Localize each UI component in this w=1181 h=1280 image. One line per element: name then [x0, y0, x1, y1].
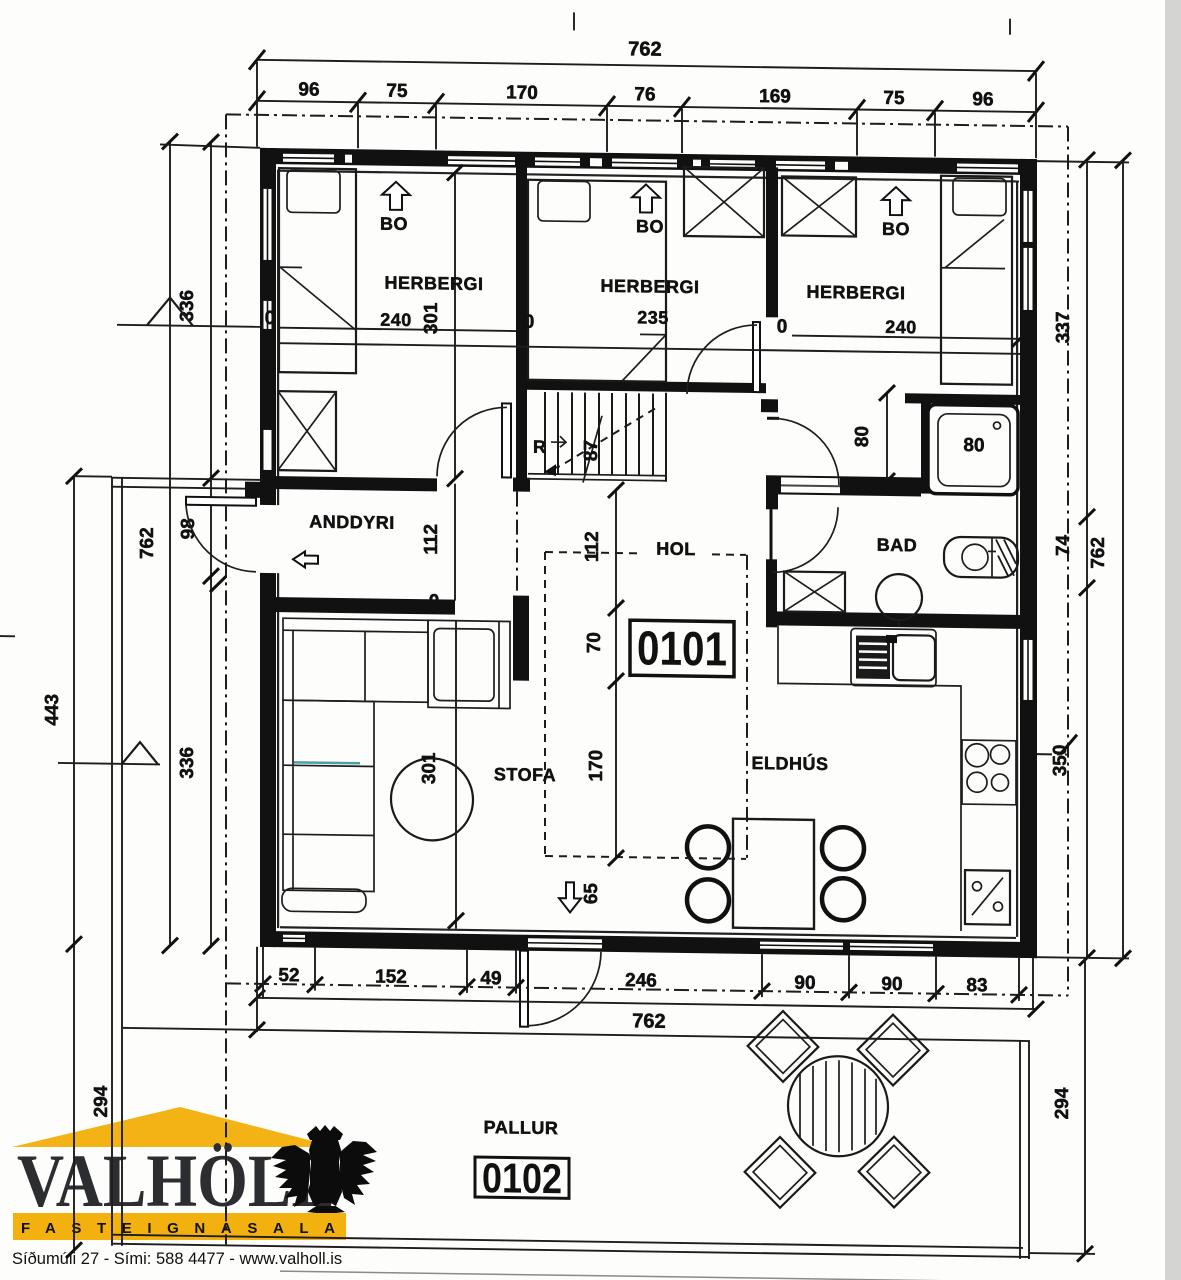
svg-text:75: 75: [386, 81, 408, 102]
svg-text:Síðumúli 27 - Sími: 588 4477 -: Síðumúli 27 - Sími: 588 4477 - www.valho…: [12, 1250, 342, 1268]
svg-text:350: 350: [1050, 744, 1071, 776]
svg-text:336: 336: [177, 747, 198, 779]
svg-text:52: 52: [278, 965, 299, 986]
svg-text:49: 49: [480, 968, 501, 989]
svg-text:HOL: HOL: [656, 539, 695, 560]
svg-text:762: 762: [1088, 537, 1109, 569]
svg-text:0101: 0101: [637, 622, 727, 676]
svg-text:87: 87: [581, 440, 602, 461]
svg-text:HERBERGI: HERBERGI: [600, 276, 699, 297]
svg-text:246: 246: [625, 970, 657, 991]
svg-text:BO: BO: [380, 214, 408, 234]
svg-text:169: 169: [759, 86, 791, 107]
svg-text:294: 294: [91, 1085, 112, 1117]
svg-text:240: 240: [380, 310, 412, 330]
svg-text:762: 762: [137, 527, 158, 559]
svg-text:74: 74: [1053, 534, 1074, 556]
svg-text:336: 336: [177, 290, 198, 322]
svg-text:STOFA: STOFA: [494, 764, 556, 785]
svg-text:235: 235: [637, 307, 669, 327]
svg-text:0: 0: [777, 316, 788, 337]
svg-text:65: 65: [581, 883, 602, 905]
svg-text:ELDHÚS: ELDHÚS: [751, 752, 828, 774]
svg-text:76: 76: [634, 84, 655, 105]
svg-text:240: 240: [885, 317, 917, 337]
svg-text:112: 112: [582, 531, 603, 562]
svg-text:762: 762: [628, 38, 661, 60]
svg-text:83: 83: [966, 975, 987, 996]
svg-text:96: 96: [972, 89, 993, 110]
svg-text:ANDDYRI: ANDDYRI: [309, 512, 395, 533]
svg-text:337: 337: [1053, 312, 1074, 344]
svg-text:301: 301: [419, 752, 440, 784]
svg-text:BO: BO: [882, 219, 910, 239]
svg-text:R: R: [533, 437, 546, 457]
svg-text:75: 75: [883, 88, 905, 109]
svg-text:90: 90: [881, 974, 902, 995]
svg-text:443: 443: [42, 694, 63, 726]
svg-text:0102: 0102: [482, 1154, 562, 1202]
svg-text:80: 80: [852, 426, 873, 447]
svg-text:0: 0: [429, 591, 440, 612]
svg-text:112: 112: [421, 524, 442, 555]
svg-text:80: 80: [963, 435, 984, 456]
svg-text:90: 90: [794, 973, 815, 994]
svg-text:HERBERGI: HERBERGI: [806, 282, 905, 303]
svg-text:BAD: BAD: [877, 535, 917, 556]
svg-text:70: 70: [584, 632, 605, 653]
svg-text:170: 170: [506, 82, 538, 103]
svg-text:170: 170: [586, 750, 607, 782]
svg-text:HERBERGI: HERBERGI: [384, 273, 483, 294]
svg-text:301: 301: [421, 302, 442, 334]
svg-text:BO: BO: [636, 216, 664, 236]
svg-text:294: 294: [1052, 1087, 1073, 1119]
svg-text:96: 96: [298, 79, 319, 100]
svg-text:0: 0: [265, 308, 276, 329]
svg-text:152: 152: [375, 967, 407, 988]
svg-text:PALLUR: PALLUR: [484, 1117, 559, 1138]
svg-text:0: 0: [524, 312, 535, 333]
svg-text:762: 762: [632, 1010, 665, 1032]
